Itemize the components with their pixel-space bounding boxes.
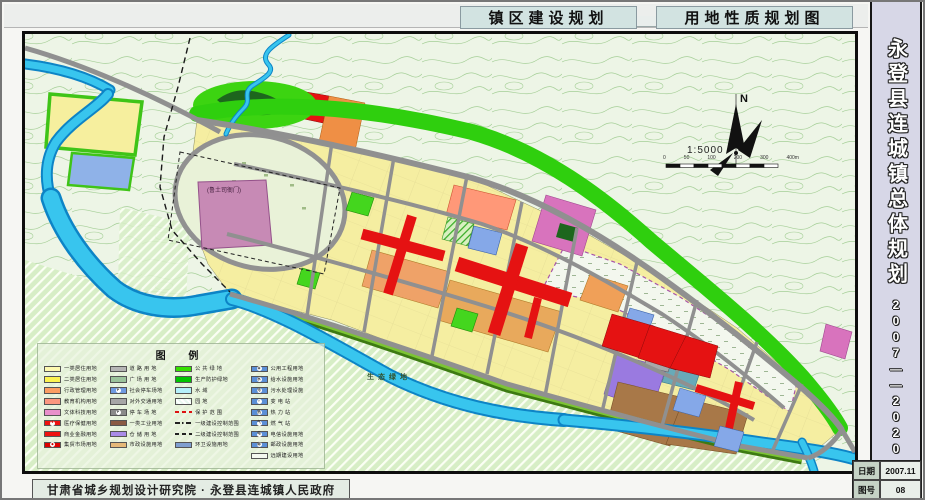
legend-swatch-icon: ⚡ <box>257 399 262 404</box>
legend-item-label: 二级建设控制范围 <box>195 431 239 438</box>
right-title-panel: 永登县连城镇总体规划 2007——2020 <box>870 2 922 500</box>
legend-swatch <box>175 409 192 416</box>
legend-swatch-icon: 邮 <box>257 442 262 447</box>
legend-item: 水给水设施用地 <box>251 376 321 384</box>
legend-swatch-icon: 气 <box>257 421 262 426</box>
legend-item: 仓 储 用 地 <box>110 430 176 438</box>
date-value: 2007.11 <box>880 461 921 480</box>
legend-item-label: 保 护 范 围 <box>195 409 222 416</box>
legend-column: 公 共 绿 地生产防护绿地水 域园 地保 护 范 围一级建设控制范围二级建设控制… <box>175 365 250 460</box>
legend-item-label: 商业金融用地 <box>64 431 97 438</box>
legend-swatch <box>175 420 192 427</box>
legend-swatch-icon: 热 <box>257 410 262 415</box>
legend-item-label: 环卫设施用地 <box>195 441 228 448</box>
legend-item-label: 热 力 站 <box>271 409 291 416</box>
legend-panel: 图 例 一类居住用地二类居住用地行政管理用地教育机构用地文体科技用地✚医疗保健用… <box>37 343 325 469</box>
scalebar-tick: 100 <box>707 156 715 161</box>
legend-swatch-icon: 水 <box>257 377 262 382</box>
sheet-no-value: 08 <box>880 480 921 499</box>
legend-item: ✚医疗保健用地 <box>44 419 110 427</box>
legend-item-label: 二类居住用地 <box>64 376 97 383</box>
legend-item-label: 文体科技用地 <box>64 409 97 416</box>
legend-title: 图 例 <box>44 347 320 362</box>
legend-item-label: 道 路 用 地 <box>130 365 157 372</box>
eco-green-label: 生态绿地 <box>367 374 411 381</box>
legend-swatch <box>110 366 127 373</box>
title-connector <box>636 16 657 27</box>
plan-title-vertical: 永登县连城镇总体规划 <box>872 32 920 294</box>
legend-swatch <box>110 442 127 449</box>
legend-item-label: 水 域 <box>195 387 208 394</box>
legend-item: 一类居住用地 <box>44 365 110 373</box>
legend-column: 一类居住用地二类居住用地行政管理用地教育机构用地文体科技用地✚医疗保健用地商业金… <box>44 365 110 460</box>
legend-swatch-icon: P <box>116 388 121 393</box>
legend-item-label: 燃 气 站 <box>271 420 291 427</box>
heritage-label: (鲁土司衙门) <box>207 188 241 194</box>
scalebar-tick: 50 <box>684 156 690 161</box>
scalebar-tick: 400m <box>786 156 799 161</box>
legend-item: P停 车 场 地 <box>110 409 176 417</box>
legend-item: 邮邮政设施用地 <box>251 441 321 449</box>
legend-item: 对外交通用地 <box>110 398 176 406</box>
scale-bar <box>666 164 778 168</box>
legend-item-label: 电信设施用地 <box>271 431 304 438</box>
legend-column: ◉公用工程用地水给水设施用地污污水处理设施⚡变 电 站热热 力 站气燃 气 站电… <box>251 365 321 460</box>
legend-swatch: ◆ <box>44 442 61 449</box>
legend-columns: 一类居住用地二类居住用地行政管理用地教育机构用地文体科技用地✚医疗保健用地商业金… <box>44 365 320 460</box>
legend-swatch <box>44 387 61 394</box>
legend-item-label: 园 地 <box>195 398 208 405</box>
legend-item: 保 护 范 围 <box>175 409 250 417</box>
map-frame: 生态绿地 (鲁土司衙门) N 1:5000 050100200300400m 图… <box>22 31 858 474</box>
legend-item: ⚡变 电 站 <box>251 398 321 406</box>
legend-swatch <box>110 376 127 383</box>
plan-sheet: 镇区建设规划 用地性质规划图 <box>0 0 925 500</box>
legend-item: ◆集贸市场用地 <box>44 441 110 449</box>
plan-years-vertical: 2007——2020 <box>872 298 920 458</box>
scale-text: 1:5000 <box>687 146 724 156</box>
legend-item-label: 一级建设控制范围 <box>195 420 239 427</box>
legend-swatch: ⚡ <box>251 398 268 405</box>
legend-swatch <box>251 453 268 460</box>
legend-item: ◉公用工程用地 <box>251 365 321 373</box>
legend-item-label: 公 共 绿 地 <box>195 365 222 372</box>
date-label: 日期 <box>853 461 880 480</box>
legend-swatch <box>110 398 127 405</box>
legend-swatch: 气 <box>251 420 268 427</box>
legend-item: 教育机构用地 <box>44 398 110 406</box>
legend-swatch: P <box>110 409 127 416</box>
legend-item: 污污水处理设施 <box>251 387 321 395</box>
legend-swatch-icon: ◆ <box>50 442 55 447</box>
legend-swatch: ◉ <box>251 366 268 373</box>
legend-swatch <box>44 409 61 416</box>
legend-item: 水 域 <box>175 387 250 395</box>
legend-swatch <box>110 420 127 427</box>
legend-item-label: 对外交通用地 <box>130 398 163 405</box>
scalebar-tick: 200 <box>734 156 742 161</box>
legend-item: 电电信设施用地 <box>251 430 321 438</box>
legend-item: 文体科技用地 <box>44 409 110 417</box>
legend-swatch: 电 <box>251 431 268 438</box>
legend-item-label: 邮政设施用地 <box>271 441 304 448</box>
legend-item-label: 市政设施用地 <box>130 441 163 448</box>
legend-column: 道 路 用 地广 场 用 地P社会停车场地对外交通用地P停 车 场 地一类工业用… <box>110 365 176 460</box>
legend-item-label: 污水处理设施 <box>271 387 304 394</box>
legend-swatch: 水 <box>251 376 268 383</box>
legend-item-label: 仓 储 用 地 <box>130 431 157 438</box>
scalebar-tick: 0 <box>663 156 666 161</box>
legend-item-label: 停 车 场 地 <box>130 409 157 416</box>
legend-item: 广 场 用 地 <box>110 376 176 384</box>
attribution-bar: 甘肃省城乡规划设计研究院 · 永登县连城镇人民政府 <box>32 479 350 500</box>
legend-item-label: 广 场 用 地 <box>130 376 157 383</box>
legend-item: 行政管理用地 <box>44 387 110 395</box>
legend-item-label: 远期建设用地 <box>271 452 304 459</box>
legend-item-label: 公用工程用地 <box>271 365 304 372</box>
legend-item-label: 给水设施用地 <box>271 376 304 383</box>
legend-swatch-icon: 污 <box>257 388 262 393</box>
legend-swatch <box>175 376 192 383</box>
legend-item: 远期建设用地 <box>251 452 321 460</box>
legend-item-label: 教育机构用地 <box>64 398 97 405</box>
legend-item: 公 共 绿 地 <box>175 365 250 373</box>
legend-item: 环卫设施用地 <box>175 441 250 449</box>
legend-item: 气燃 气 站 <box>251 419 321 427</box>
legend-swatch <box>175 366 192 373</box>
sheet-title-left: 镇区建设规划 <box>460 6 637 29</box>
legend-swatch <box>175 398 192 405</box>
legend-swatch: ✚ <box>44 420 61 427</box>
legend-item-label: 医疗保健用地 <box>64 420 97 427</box>
legend-swatch-icon: P <box>116 410 121 415</box>
legend-swatch: P <box>110 387 127 394</box>
legend-swatch <box>44 431 61 438</box>
legend-item-label: 行政管理用地 <box>64 387 97 394</box>
legend-swatch <box>175 442 192 449</box>
legend-swatch <box>175 431 192 438</box>
doc-info-table: 日期 2007.11 图号 08 <box>852 460 922 500</box>
legend-item: 一类工业用地 <box>110 419 176 427</box>
legend-item-label: 社会停车场地 <box>130 387 163 394</box>
legend-item-label: 一类工业用地 <box>130 420 163 427</box>
legend-swatch-icon: 电 <box>257 432 262 437</box>
legend-item: 生产防护绿地 <box>175 376 250 384</box>
legend-swatch: 热 <box>251 409 268 416</box>
legend-item: 热热 力 站 <box>251 409 321 417</box>
scalebar-ticks: 050100200300400m <box>663 156 799 161</box>
legend-swatch <box>175 387 192 394</box>
legend-item-label: 一类居住用地 <box>64 365 97 372</box>
legend-item: 园 地 <box>175 398 250 406</box>
legend-swatch: 污 <box>251 387 268 394</box>
legend-item: 市政设施用地 <box>110 441 176 449</box>
legend-swatch: 邮 <box>251 442 268 449</box>
legend-swatch-icon: ◉ <box>257 366 262 371</box>
legend-item-label: 集贸市场用地 <box>64 441 97 448</box>
legend-item: 二级建设控制范围 <box>175 430 250 438</box>
legend-swatch <box>110 431 127 438</box>
legend-item: 道 路 用 地 <box>110 365 176 373</box>
legend-swatch <box>44 366 61 373</box>
scalebar-tick: 300 <box>760 156 768 161</box>
sheet-title-right: 用地性质规划图 <box>656 6 853 29</box>
sheet-no-label: 图号 <box>853 480 880 499</box>
legend-item-label: 变 电 站 <box>271 398 291 405</box>
legend-item-label: 生产防护绿地 <box>195 376 228 383</box>
legend-swatch <box>44 376 61 383</box>
legend-swatch-icon: ✚ <box>50 421 55 426</box>
legend-item: 商业金融用地 <box>44 430 110 438</box>
legend-swatch <box>44 398 61 405</box>
north-label: N <box>740 94 748 105</box>
legend-item: P社会停车场地 <box>110 387 176 395</box>
legend-item: 一级建设控制范围 <box>175 419 250 427</box>
legend-item: 二类居住用地 <box>44 376 110 384</box>
